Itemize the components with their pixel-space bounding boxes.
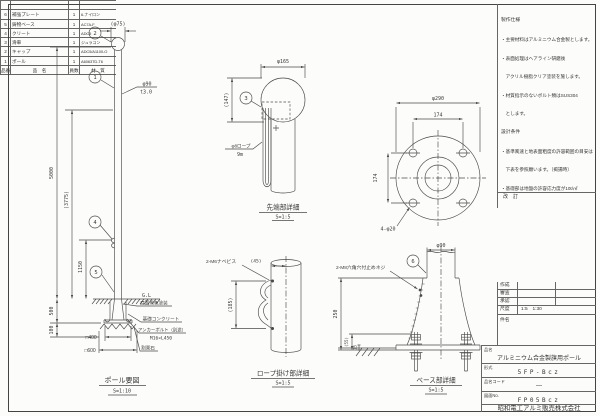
dim-174-h: 174 [433, 113, 442, 119]
subject-box: 件名 [497, 314, 596, 345]
dim-phi165: φ165 [277, 59, 289, 65]
notes-panel: 製作仕様 ・主要材料はアルミニウム合金製とします。 ・表面処理はヘアライン研磨後… [497, 4, 596, 208]
tip-detail-scale: S=1:5 [275, 215, 290, 221]
model-value: 5FP-Bcz [482, 369, 596, 376]
design-title: 設計条件 [501, 130, 594, 136]
dim-147: (147) [224, 92, 230, 107]
notes-content: 製作仕様 ・主要材料はアルミニウム合金製とします。 ・表面処理はヘアライン研磨後… [498, 4, 596, 192]
row-label: 審査 [498, 290, 518, 297]
dim-1150: 1150 [78, 261, 84, 273]
row-label: 尺度 [498, 306, 518, 314]
dim-t30: t3.0 [140, 90, 152, 96]
tip-detail-title: 先端部詳細 [267, 203, 300, 212]
tip-detail-drawing [225, 64, 307, 221]
spec-line: ・表面処理はヘアライン研磨後 [501, 56, 594, 62]
spec-line: ・材質指示のないボルト類はSUS304 [501, 93, 594, 99]
dim-45: (45) [250, 259, 261, 265]
rope-hook-title: ロープ掛け部詳細 [257, 369, 310, 378]
base-detail-texts: φ290 174 174 4-φ20 φ90 6 2-M8六角穴付止めネジ 25… [333, 96, 456, 394]
label-foundation-concrete: 基礎コンクリート [143, 316, 180, 323]
rope-hook-detail-drawing [231, 256, 315, 387]
base-detail-title: ベース部詳細 [416, 376, 456, 385]
scale-row: 尺度 1:5 1:30 [498, 306, 596, 314]
company-name: 昭和電工アルミ販売株式会社 [482, 405, 596, 413]
spec-line: ・主要材料はアルミニウム合金製とします。 [501, 37, 594, 43]
approval-row: 審査 [498, 290, 596, 298]
dim-100: 100 [49, 325, 55, 334]
label-m6-screw: 2-M6ナベビス [206, 258, 236, 265]
pole-view-title: ポール要図 [105, 377, 140, 385]
code-value: ― [482, 383, 596, 389]
row-label: 承認 [498, 298, 518, 305]
row-subcell [555, 282, 596, 289]
dim-3775: (3775) [64, 191, 70, 209]
drawing-sheet: (φ75) 2 1 φ90 t3.0 5000 (3775) 1150 4 5 … [0, 0, 600, 416]
dim-phi90-base: φ90 [436, 243, 445, 249]
dim-4-phi20: 4-φ20 [380, 227, 395, 233]
approval-block: 作成 審査 承認 尺度 1:5 1:30 [497, 282, 596, 314]
gl-label: G.L [142, 293, 151, 299]
row-value [518, 290, 555, 297]
spec-line: アクリル樹脂クリア塗装を施します。 [501, 74, 594, 80]
row-value [518, 298, 555, 305]
dim-174-v: 174 [373, 173, 379, 182]
label-m8-setscrew: 2-M8六角穴付止めネジ [336, 264, 386, 271]
label-gravel: 割栗石 [141, 345, 155, 352]
dim-phi90: φ90 [142, 82, 151, 88]
dim-phi290: φ290 [432, 96, 444, 102]
drawing-no-value: FP05Bcz [482, 397, 596, 404]
pole-view-scale: S=1:10 [113, 389, 131, 395]
label-black-paint: 底面黒色塗装 [140, 300, 168, 307]
dim-sq600: □600 [84, 348, 96, 354]
dim-55: (55) [344, 337, 349, 347]
spec-title: 製作仕様 [501, 18, 594, 24]
row-subcell [555, 298, 596, 305]
balloon-6-number: 6 [411, 259, 414, 265]
dim-15: 15 [353, 345, 358, 351]
dim-185: (185) [228, 297, 234, 312]
dim-5000: 5000 [49, 167, 55, 179]
balloon-4-number: 4 [93, 220, 97, 226]
design-line: 下表を参照願います。〔掲揚時〕 [501, 167, 594, 173]
dim-sq400: □400 [85, 335, 97, 341]
tip-detail-texts: φ165 (147) 3 φ8ロープ 9m 先端部詳細 S=1:5 [224, 59, 300, 221]
label-anchor-bolt-size: M16×L450 [150, 336, 172, 342]
product-title-block: 品名 アルミニウム合金製旗用ポール 形式 5FP-Bcz 品名コード ― 図面N… [481, 345, 596, 412]
drawing-no-row: 図面No. FP05Bcz [482, 392, 596, 405]
pole-view-texts: (φ75) 2 1 φ90 t3.0 5000 (3775) 1150 4 5 … [49, 22, 186, 395]
product-name-row: 品名 アルミニウム合金製旗用ポール [482, 346, 596, 364]
scale-value: 1:5 1:30 [518, 306, 596, 314]
design-line: ・基準風速と地表面粗度の許容範囲の目安は [501, 149, 594, 155]
revision-label: 改 訂 [498, 192, 596, 210]
base-detail-drawing [338, 103, 486, 394]
row-subcell [555, 290, 596, 297]
row-label: 作成 [498, 282, 518, 289]
base-detail-scale: S=1:5 [428, 388, 443, 394]
label-rope: φ8ロープ [231, 144, 250, 150]
subject-label: 件名 [500, 318, 510, 323]
spec-line: とします。 [501, 111, 594, 117]
rope-hook-texts: 2-M6ナベビス (45) (185) ロープ掛け部詳細 S=1:5 [206, 258, 310, 387]
dim-500: 500 [49, 306, 55, 315]
balloon-5-number: 5 [94, 270, 97, 276]
balloon-2-number: 2 [93, 31, 96, 37]
label-anchor-bolt: アンカーボルト（別途） [138, 327, 186, 334]
rope-hook-scale: S=1:5 [275, 381, 290, 387]
balloon-3-number: 3 [244, 96, 247, 102]
balloon-1-number: 1 [93, 75, 96, 81]
model-row: 形式 5FP-Bcz [482, 364, 596, 378]
code-row: 品名コード ― [482, 378, 596, 392]
dim-phi75: (φ75) [110, 22, 125, 28]
approval-row: 作成 [498, 282, 596, 290]
approval-row: 承認 [498, 298, 596, 306]
product-name-value: アルミニウム合金製旗用ポール [482, 353, 596, 362]
dim-250: 250 [333, 309, 339, 318]
row-value [518, 282, 555, 289]
label-rope-length: 9m [237, 152, 243, 158]
